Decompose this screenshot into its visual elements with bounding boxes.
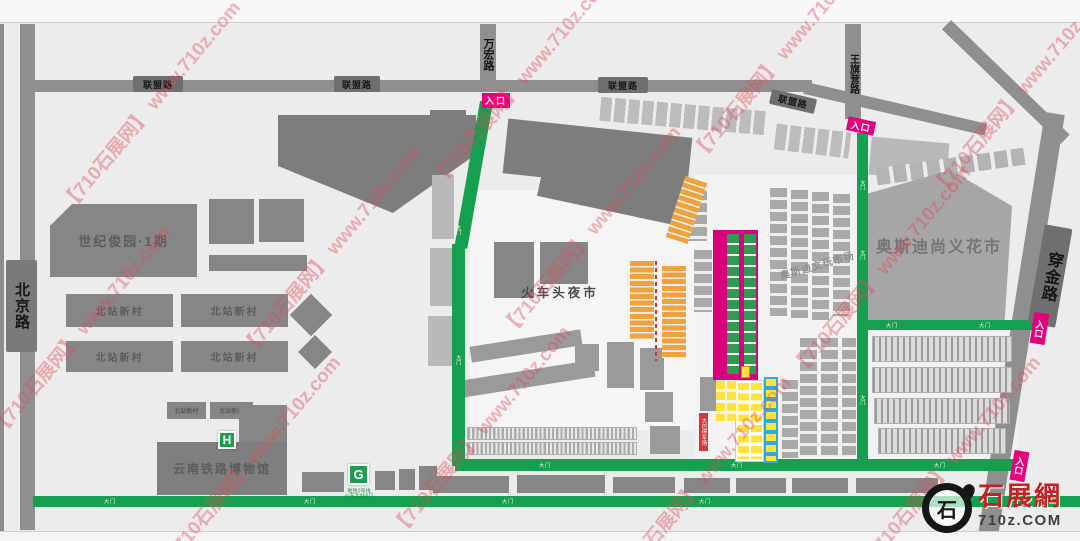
stall-column <box>842 338 856 456</box>
building-label: 北站新村 <box>96 349 144 364</box>
stall-column <box>694 250 712 312</box>
top-margin-band <box>0 0 1080 23</box>
building-block <box>645 392 673 422</box>
watermark-text: 【710石展网】 www.710z.com <box>54 0 246 216</box>
building-block <box>575 344 599 371</box>
stone-seal-icon: 石 <box>922 483 972 533</box>
building-block <box>607 342 634 388</box>
entrance-marker-north: 入口 <box>482 93 510 108</box>
stall-row <box>774 124 852 159</box>
bottom-margin-band <box>0 531 1080 541</box>
building-label: 北站新村 <box>96 303 144 318</box>
building-block <box>298 335 332 369</box>
building-block <box>540 242 588 284</box>
stall-column <box>791 190 808 318</box>
building-block <box>259 199 304 242</box>
building-beizhan-xincun: 北站新村 <box>181 294 288 327</box>
stall-group-yellow <box>716 381 737 421</box>
gate-label: 大门 <box>699 497 711 505</box>
building-block <box>433 476 509 493</box>
parking-row <box>467 427 637 440</box>
building-block <box>209 199 254 244</box>
stall-strip-orange-1 <box>630 261 654 339</box>
building-label: 北站新村 <box>211 303 259 318</box>
gate-label: 大门 <box>454 225 462 235</box>
building-label: 北站新村 <box>174 406 198 415</box>
stall-column-yellow <box>738 383 749 459</box>
red-dashed-line <box>655 261 657 361</box>
building-beizhan-xincun: 北站新村 <box>167 402 206 419</box>
ink-blob <box>959 482 977 502</box>
building-block <box>432 175 454 239</box>
building-block <box>650 426 680 454</box>
building-label: 世纪俊园·1期 <box>78 231 169 250</box>
building-flower-market: 奥斯迪尚义花市 <box>866 170 1012 320</box>
building-block <box>399 469 415 490</box>
site-logo: 石 石展網 710z.COM <box>922 477 1080 539</box>
gate-label: 大门 <box>502 497 514 505</box>
building-beizhan-xincun: 北站新村 <box>181 341 288 372</box>
site-map: 联盟路 联盟路 联盟路 联盟路 北京路 万宏路 王旗营路 穿金路 大门 大门 大… <box>0 0 1080 541</box>
stall-column-yellow <box>751 383 762 459</box>
building-beizhan-xincun: 北站新村 <box>66 341 173 372</box>
stall-yellow <box>741 366 750 378</box>
gate-label: 大门 <box>539 461 551 469</box>
parking-row <box>878 428 1006 454</box>
stall-panel-white <box>735 380 764 462</box>
wanhong-road-label: 万宏路 <box>480 26 496 83</box>
building-label: 北站新村 <box>211 349 259 364</box>
stall-strip-blue <box>764 377 778 463</box>
stall-strip-orange-2 <box>662 266 686 358</box>
gate-label: 大门 <box>304 497 316 505</box>
gate-label: 大门 <box>886 321 898 329</box>
stall-column-yellow <box>766 379 776 461</box>
gate-label: 大门 <box>858 395 866 405</box>
building-block <box>792 478 848 493</box>
building-label: 云南铁路博物馆 <box>173 460 271 477</box>
building-beizhan-xincun: 北站新村 <box>66 294 173 327</box>
stall-column <box>821 338 838 456</box>
gate-label: 大门 <box>454 355 462 365</box>
gate-label: 大门 <box>731 461 743 469</box>
stall-column <box>800 338 817 456</box>
parking-row <box>874 398 1010 424</box>
building-label: 奥斯迪尚义花市 <box>876 233 1002 257</box>
lianmeng-road-slant <box>803 82 987 136</box>
gate-label: 大门 <box>104 497 116 505</box>
building-block <box>430 110 466 162</box>
building-block <box>517 475 605 493</box>
wangqiying-road-label: 王旗营路 <box>845 42 861 106</box>
logo-site-name: 石展網 <box>978 482 1078 512</box>
gate-label: 大门 <box>979 321 991 329</box>
lianmeng-road-label-1: 联盟路 <box>133 76 183 92</box>
g-marker: G <box>348 464 369 485</box>
building-block <box>209 255 307 271</box>
stall-column-green <box>727 234 739 374</box>
parking-row <box>872 336 1012 362</box>
parking-row <box>467 442 637 455</box>
building-block <box>613 477 675 493</box>
stall-column-green <box>744 234 756 374</box>
gate-label: 大门 <box>934 461 946 469</box>
bus-parking-label: 大巴停车场 <box>699 413 708 451</box>
building-block <box>640 348 664 390</box>
stall-row <box>599 97 765 135</box>
entrance-marker-east: 入口 <box>1030 312 1050 345</box>
g-marker-caption-line2: 火车北站A口 <box>345 494 374 499</box>
gate-label: 大门 <box>858 180 866 190</box>
building-block <box>700 377 716 411</box>
building-shiji-junyuan: 世纪俊园·1期 <box>50 204 197 277</box>
h-marker: H <box>218 431 236 449</box>
lianmeng-road-label-3: 联盟路 <box>598 77 648 93</box>
lianmeng-road-label-2: 联盟路 <box>334 76 380 92</box>
building-block <box>430 248 454 306</box>
stall-column <box>770 188 787 316</box>
stall-column <box>782 380 798 458</box>
building-block <box>428 316 452 366</box>
map-left-edge <box>0 24 4 531</box>
seal-character: 石 <box>937 494 957 523</box>
pink-market-strip <box>713 230 758 380</box>
logo-site-domain: 710z.COM <box>978 512 1078 529</box>
building-block <box>290 294 332 336</box>
building-block <box>239 405 287 443</box>
night-market-label: 火车头夜市 <box>505 283 615 299</box>
g-marker-caption: 地铁2号线 火车北站A口 <box>334 488 383 500</box>
building-railway-museum: 云南铁路博物馆 <box>157 442 287 495</box>
building-block <box>684 478 730 493</box>
building-block <box>736 478 786 493</box>
parking-row <box>872 367 1012 393</box>
beijing-road-label: 北京路 <box>6 260 37 352</box>
